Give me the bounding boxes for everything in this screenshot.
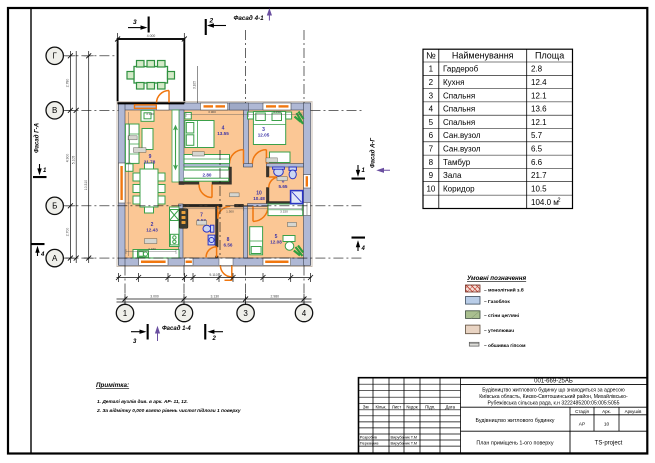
svg-text:6.56: 6.56 — [224, 243, 233, 248]
svg-text:4: 4 — [40, 252, 45, 258]
svg-text:3.150: 3.150 — [273, 110, 281, 114]
svg-text:9.110: 9.110 — [209, 273, 217, 277]
svg-text:3: 3 — [243, 309, 248, 318]
svg-text:3.130: 3.130 — [211, 295, 220, 299]
svg-text:2.8: 2.8 — [531, 65, 543, 74]
svg-text:Зала: Зала — [443, 171, 462, 180]
svg-text:Будівництво житлового будинку: Будівництво житлового будинку що знаходи… — [482, 387, 625, 393]
svg-text:3.000: 3.000 — [150, 295, 159, 299]
svg-text:Кухня: Кухня — [443, 78, 464, 87]
svg-text:7: 7 — [429, 145, 434, 154]
svg-text:1: 1 — [429, 65, 434, 74]
svg-text:Примітка:: Примітка: — [96, 381, 129, 389]
svg-text:Умовні позначення: Умовні позначення — [467, 275, 526, 282]
svg-text:– монолітний з.б: – монолітний з.б — [484, 287, 524, 294]
svg-text:– обшивка гіпсом: – обшивка гіпсом — [484, 342, 526, 349]
svg-text:10.5: 10.5 — [531, 184, 547, 193]
svg-text:3.150: 3.150 — [280, 210, 288, 214]
svg-text:2.80: 2.80 — [203, 173, 212, 178]
svg-text:Зм: Зм — [363, 404, 369, 409]
svg-text:12.1: 12.1 — [531, 118, 547, 127]
svg-text:№: № — [426, 51, 436, 61]
svg-text:Розробив: Розробив — [360, 435, 377, 440]
svg-text:Вирубаник Т.М: Вирубаник Т.М — [391, 435, 418, 440]
svg-text:3: 3 — [133, 19, 137, 26]
svg-text:– стіни цегляні: – стіни цегляні — [484, 313, 519, 319]
svg-text:5.7: 5.7 — [531, 131, 543, 140]
svg-text:12.08: 12.08 — [270, 240, 282, 245]
svg-text:2: 2 — [182, 309, 187, 318]
svg-text:АР: АР — [579, 422, 585, 428]
svg-text:Коридор: Коридор — [443, 184, 475, 193]
svg-text:6.6: 6.6 — [531, 158, 543, 167]
svg-text:Б: Б — [52, 202, 57, 211]
svg-text:№док: №док — [406, 404, 418, 409]
svg-text:Г: Г — [53, 52, 58, 61]
svg-text:3.180: 3.180 — [146, 112, 154, 116]
svg-text:2: 2 — [209, 18, 214, 25]
svg-text:1. Деталі вузлів див. в арк. А: 1. Деталі вузлів див. в арк. АР- 11, 12. — [97, 399, 188, 405]
svg-text:12.4: 12.4 — [531, 78, 547, 87]
svg-text:4.000: 4.000 — [147, 34, 156, 38]
svg-text:2. За відмітку 0,000 взято рів: 2. За відмітку 0,000 взято рівень чистої… — [96, 408, 241, 414]
svg-text:2: 2 — [212, 336, 217, 342]
svg-text:21.7: 21.7 — [531, 171, 547, 180]
svg-text:3: 3 — [429, 91, 434, 100]
svg-text:21.78: 21.78 — [144, 160, 156, 165]
svg-text:10.48: 10.48 — [253, 196, 265, 201]
svg-text:2.980: 2.980 — [271, 295, 280, 299]
svg-text:Підп.: Підп. — [425, 404, 435, 409]
svg-text:1: 1 — [123, 309, 128, 318]
svg-text:6.5: 6.5 — [531, 145, 543, 154]
svg-text:TS-project: TS-project — [595, 441, 623, 447]
svg-text:10.310: 10.310 — [84, 180, 88, 190]
svg-text:Сан.вузол: Сан.вузол — [443, 145, 481, 154]
svg-text:5.65: 5.65 — [279, 184, 288, 189]
svg-text:001-669-25АБ: 001-669-25АБ — [534, 379, 573, 385]
svg-text:Будівництво житлового будинку: Будівництво житлового будинку — [475, 418, 554, 424]
svg-text:2: 2 — [429, 78, 434, 87]
svg-text:10: 10 — [604, 422, 610, 428]
svg-text:4.900: 4.900 — [66, 154, 70, 163]
svg-text:2: 2 — [558, 198, 561, 204]
svg-text:Рубежівська сільська рада, к.н: Рубежівська сільська рада, к.н 322248520… — [488, 401, 620, 407]
svg-text:3.105: 3.105 — [193, 81, 197, 89]
svg-text:10: 10 — [426, 184, 435, 193]
svg-text:5: 5 — [429, 118, 434, 127]
svg-text:План приміщень 1-ого поверху: План приміщень 1-ого поверху — [476, 441, 553, 447]
svg-text:В: В — [52, 106, 57, 115]
svg-text:Вирубаник Т.М: Вирубаник Т.М — [391, 441, 418, 446]
svg-text:Дата: Дата — [445, 404, 455, 409]
svg-text:104.0 м: 104.0 м — [531, 198, 559, 207]
svg-text:6: 6 — [429, 131, 434, 140]
svg-text:2.780: 2.780 — [66, 79, 70, 88]
svg-text:А: А — [52, 254, 58, 263]
svg-text:Аркушів: Аркушів — [625, 409, 642, 414]
svg-text:Стадія: Стадія — [575, 409, 589, 414]
svg-text:– Газоблок: – Газоблок — [484, 298, 510, 305]
svg-text:Фасад А-Г: Фасад А-Г — [371, 138, 377, 168]
svg-text:Перевірив: Перевірив — [360, 441, 379, 446]
svg-text:4: 4 — [302, 309, 307, 318]
svg-text:1.500: 1.500 — [226, 210, 234, 214]
svg-text:5.105: 5.105 — [72, 156, 76, 165]
svg-text:3.900: 3.900 — [208, 110, 216, 114]
svg-text:Спальня: Спальня — [443, 105, 475, 114]
svg-text:Сан.вузол: Сан.вузол — [443, 131, 481, 140]
svg-text:12.05: 12.05 — [258, 133, 270, 138]
svg-text:Фасад Г-А: Фасад Г-А — [35, 123, 41, 153]
svg-text:Тамбур: Тамбур — [443, 158, 471, 167]
svg-text:12.43: 12.43 — [146, 228, 158, 233]
svg-text:Площа: Площа — [535, 51, 564, 61]
svg-text:Найменування: Найменування — [452, 51, 514, 61]
svg-text:Арк.: Арк. — [602, 409, 611, 414]
svg-text:Фасад 1-4: Фасад 1-4 — [162, 326, 191, 332]
svg-text:4: 4 — [361, 246, 366, 252]
svg-text:Спальня: Спальня — [443, 91, 475, 100]
svg-text:– утеплювач: – утеплювач — [484, 329, 514, 334]
svg-text:9: 9 — [429, 171, 434, 180]
svg-text:12.1: 12.1 — [531, 91, 547, 100]
svg-text:Київська область, Києво-Святош: Київська область, Києво-Святошинський ра… — [479, 393, 628, 400]
svg-text:13.6: 13.6 — [531, 105, 547, 114]
svg-text:Лист: Лист — [392, 404, 401, 409]
svg-text:8: 8 — [429, 158, 434, 167]
svg-text:13.55: 13.55 — [217, 131, 229, 136]
svg-text:3.180: 3.180 — [148, 247, 156, 251]
svg-text:2.700: 2.700 — [66, 228, 70, 237]
svg-text:4: 4 — [429, 105, 434, 114]
svg-text:Кільк.: Кільк. — [376, 404, 387, 409]
svg-text:Гардероб: Гардероб — [443, 65, 479, 74]
svg-text:Спальня: Спальня — [443, 118, 475, 127]
svg-text:Фасад 4-1: Фасад 4-1 — [234, 14, 265, 22]
